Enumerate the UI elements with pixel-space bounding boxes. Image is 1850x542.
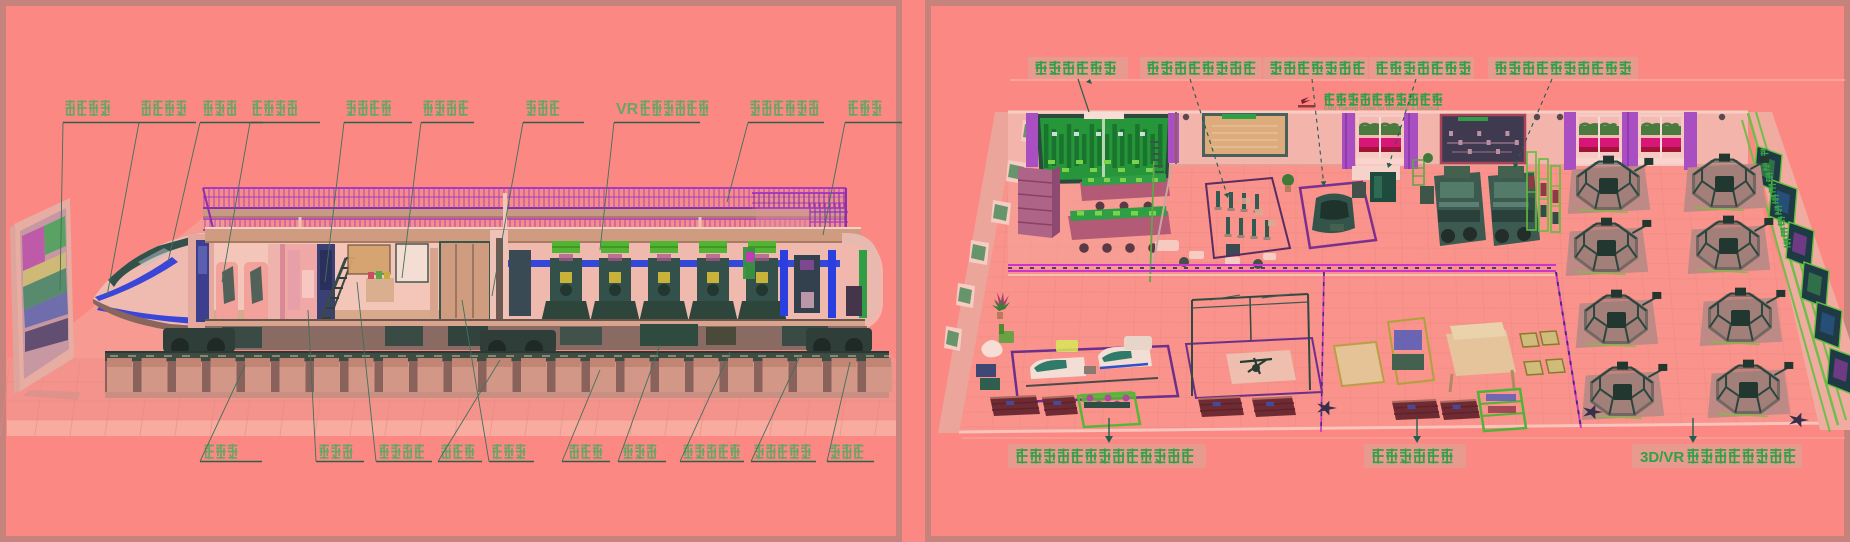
svg-text:3D/VR: 3D/VR <box>1640 449 1684 466</box>
svg-text:VR: VR <box>616 101 639 118</box>
svg-text:EMU Training Center for Mechan: EMU Training Center for Mechanic & Elect… <box>1324 106 1439 112</box>
